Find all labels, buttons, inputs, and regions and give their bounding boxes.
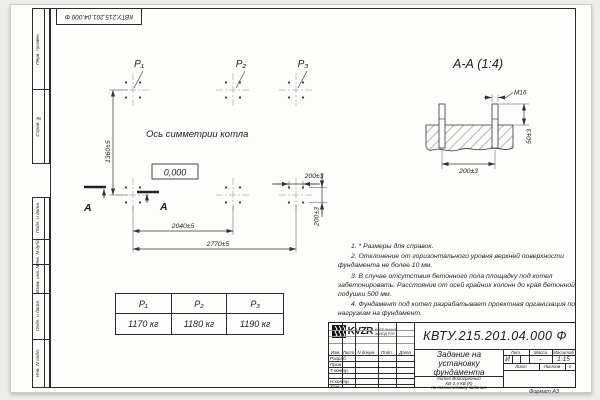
sheets-label: Листов — [539, 364, 565, 369]
title-block: КВТУ.215.201.04.000 Ф Задание на установ… — [328, 322, 576, 388]
drawing-sheet-page: КВТУ.215.201.04.000 Ф Перв. примен. Спра… — [0, 0, 600, 400]
note-1: 1. * Размеры для справок. — [338, 243, 578, 252]
sig-row-razrab: Разраб. — [330, 356, 347, 361]
sheet-label: Лист — [503, 364, 539, 369]
anchor-bolt-left — [439, 104, 445, 148]
load-table-header-p3: P₃ — [227, 294, 283, 314]
col-header-podp: Подп. — [378, 350, 396, 355]
plan-view: P₁ P₂ P₃ Ось симметрии котла 0,000 1360±… — [83, 59, 327, 253]
note-3: 3. В случае отсутствия бетонного пола пл… — [338, 273, 578, 300]
dim-value-2040: 2040±5 — [171, 223, 195, 230]
dim-value-2770: 2770±5 — [206, 241, 230, 248]
technical-notes: 1. * Размеры для справок. 2. Отклонение … — [338, 243, 578, 321]
load-table-header-p1: P₁ — [116, 294, 172, 314]
document-designation: КВТУ.215.201.04.000 Ф — [415, 323, 575, 349]
load-label-p2: P₂ — [236, 59, 247, 70]
load-leader-lines — [134, 71, 307, 88]
anchor-bolt-points — [125, 81, 304, 203]
mass-header: Масса — [529, 350, 552, 355]
format-label: Формат А3 — [529, 389, 559, 395]
col-header-izm: Изм. — [329, 350, 342, 355]
section-cut-mark-2: А — [137, 192, 168, 213]
section-title: А-А (1:4) — [452, 57, 503, 71]
col-header-ndoc: N докум. — [355, 350, 378, 355]
load-table-value-p3: 1190 кг — [227, 314, 283, 334]
cut-label-a1: А — [83, 202, 92, 214]
dim-value-50: 50±3 — [526, 129, 533, 144]
sig-row-utv: Утв. — [330, 384, 341, 389]
scale-value: 1:15 — [552, 356, 575, 363]
load-label-p3: P₃ — [298, 59, 309, 70]
product-name: Котел Водогрейный КВ-2,5 КБ (К) по техни… — [415, 377, 503, 391]
lit-header: Лит. — [503, 350, 529, 355]
load-table-value-p1: 1170 кг — [116, 314, 172, 334]
thread-size-label: М16 — [514, 90, 527, 97]
mass-value: - — [529, 356, 552, 363]
anchor-bolt-right — [492, 104, 498, 148]
dim-value-200v: 200±3 — [314, 207, 321, 227]
note-4: 4. Фундамент под котел разрабатывает про… — [338, 301, 578, 319]
section-cut-mark-1: А — [83, 187, 106, 214]
boiler-symmetry-axis-label: Ось симметрии котла — [146, 129, 248, 140]
sig-row-prov: Пров. — [330, 362, 342, 367]
col-header-data: Дата — [396, 350, 414, 355]
cut-label-a2: А — [159, 201, 168, 213]
load-label-p1: P₁ — [134, 59, 144, 70]
sig-row-nkontr: Н.контр. — [330, 379, 350, 384]
scale-header: Масштаб — [552, 350, 575, 355]
dim-value-200h: 200±3 — [304, 173, 324, 180]
section-view: А-А (1:4) М16 50±3 — [426, 57, 533, 175]
load-table: P₁ P₂ P₃ 1170 кг 1180 кг 1190 кг — [115, 293, 284, 335]
col-header-list: Лист — [342, 350, 355, 355]
load-table-header-p2: P₂ — [172, 294, 228, 314]
company-logo: KVZR КОТЕЛЬНЫЙ ЗАВОД РЭТ — [329, 323, 400, 340]
note-2: 2. Отклонение от горизонтального уровня … — [338, 253, 578, 271]
dim-value-200-section: 200±3 — [458, 168, 478, 175]
dim-value-1360: 1360±5 — [105, 140, 112, 163]
sig-row-tkontr: Т.контр. — [330, 368, 349, 373]
sheets-value: 1 — [565, 364, 575, 369]
thread-leader — [506, 93, 513, 98]
load-table-value-p2: 1180 кг — [172, 314, 228, 334]
level-mark-value: 0,000 — [164, 167, 187, 177]
document-title: Задание на установку фундамента — [415, 350, 503, 376]
lit-value: И — [503, 356, 512, 363]
